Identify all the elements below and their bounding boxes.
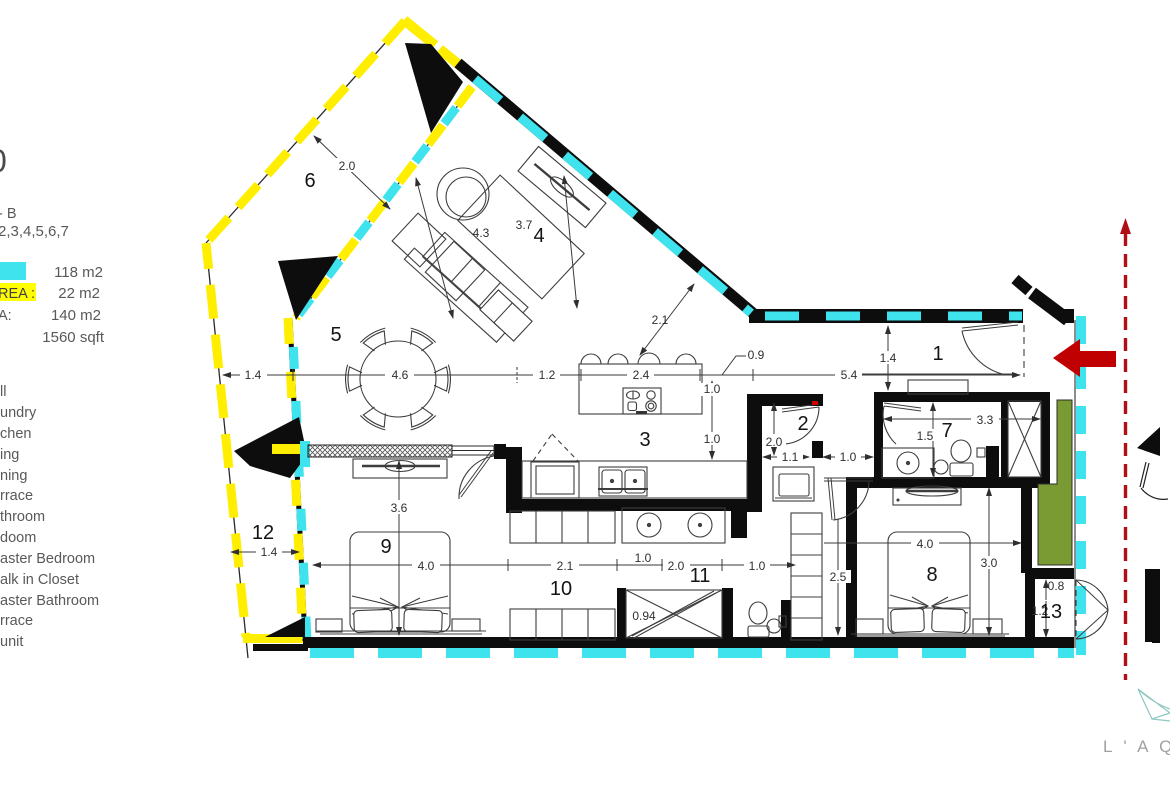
svg-text:2,3,4,5,6,7: 2,3,4,5,6,7 [0, 223, 69, 240]
svg-text:A:: A: [0, 308, 12, 324]
svg-text:aster Bathroom: aster Bathroom [0, 593, 99, 609]
svg-text:ll: ll [0, 384, 6, 400]
svg-text:0.9: 0.9 [748, 348, 765, 362]
svg-text:throom: throom [0, 509, 45, 525]
svg-text:3.0: 3.0 [981, 556, 998, 570]
svg-text:1.0: 1.0 [704, 432, 721, 446]
svg-text:4: 4 [533, 225, 544, 247]
svg-text:2.0: 2.0 [766, 435, 783, 449]
svg-text:5.4: 5.4 [841, 368, 858, 382]
svg-text:2.1: 2.1 [557, 559, 574, 573]
svg-text:REA :: REA : [0, 286, 35, 302]
svg-text:8: 8 [926, 564, 937, 586]
svg-text:4.0: 4.0 [917, 537, 934, 551]
svg-text:1.0: 1.0 [749, 559, 766, 573]
svg-text:0.8: 0.8 [1048, 579, 1065, 593]
svg-text:2.0: 2.0 [339, 159, 356, 173]
svg-text:2.5: 2.5 [830, 570, 847, 584]
svg-text:118 m2: 118 m2 [54, 264, 103, 281]
svg-text:5: 5 [330, 324, 341, 346]
svg-text:4.0: 4.0 [418, 559, 435, 573]
svg-text:2: 2 [797, 413, 808, 435]
svg-text:alk in Closet: alk in Closet [0, 572, 79, 588]
svg-text:4.3: 4.3 [473, 226, 490, 240]
svg-text:1.4: 1.4 [261, 545, 278, 559]
svg-text:1: 1 [932, 343, 943, 365]
svg-text:1560 sqft: 1560 sqft [42, 329, 105, 346]
svg-text:chen: chen [0, 426, 31, 442]
svg-text:1.4: 1.4 [245, 368, 262, 382]
svg-text:2.0: 2.0 [668, 559, 685, 573]
svg-text:ning: ning [0, 468, 27, 484]
svg-text:0: 0 [0, 143, 7, 179]
svg-text:- B: - B [0, 206, 17, 222]
svg-text:2.4: 2.4 [633, 368, 650, 382]
svg-text:11: 11 [690, 565, 711, 587]
svg-text:1.0: 1.0 [635, 551, 652, 565]
svg-text:3: 3 [639, 429, 650, 451]
svg-text:10: 10 [550, 578, 572, 600]
svg-text:140 m2: 140 m2 [51, 307, 101, 324]
svg-text:22 m2: 22 m2 [58, 285, 100, 302]
svg-text:L ' A Q: L ' A Q [1103, 737, 1170, 756]
svg-text:1.5: 1.5 [917, 429, 934, 443]
svg-text:1.0: 1.0 [840, 450, 857, 464]
svg-text:rrace: rrace [0, 488, 33, 504]
svg-text:1.0: 1.0 [704, 382, 721, 396]
svg-text:1.1: 1.1 [782, 450, 799, 464]
svg-text:undry: undry [0, 405, 37, 421]
svg-text:13: 13 [1040, 601, 1062, 623]
svg-text:aster Bedroom: aster Bedroom [0, 551, 95, 567]
svg-text:9: 9 [380, 536, 391, 558]
svg-text:unit: unit [0, 634, 23, 650]
svg-text:2.1: 2.1 [652, 313, 669, 327]
svg-text:3.3: 3.3 [977, 413, 994, 427]
svg-text:rrace: rrace [0, 613, 33, 629]
svg-text:0.94: 0.94 [632, 609, 656, 623]
svg-text:1.2: 1.2 [539, 368, 556, 382]
svg-text:doom: doom [0, 530, 36, 546]
svg-text:1.4: 1.4 [880, 351, 897, 365]
svg-text:ing: ing [0, 447, 19, 463]
svg-text:4.6: 4.6 [392, 368, 409, 382]
svg-text:12: 12 [252, 522, 274, 544]
svg-text:3.7: 3.7 [516, 218, 533, 232]
svg-text:6: 6 [304, 170, 315, 192]
svg-text:3.6: 3.6 [391, 501, 408, 515]
svg-text:7: 7 [941, 420, 952, 442]
